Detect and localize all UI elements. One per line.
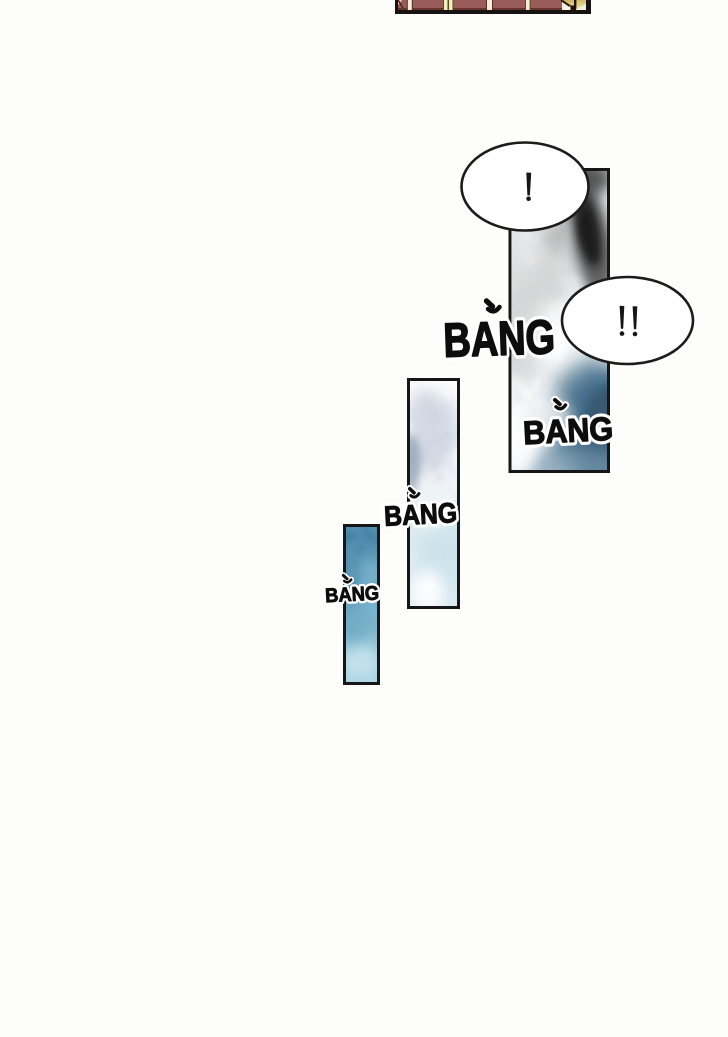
svg-text:BANG: BANG: [522, 410, 614, 452]
svg-text:BANG: BANG: [325, 583, 380, 608]
svg-text:BANG: BANG: [383, 497, 458, 532]
svg-text:BANG: BANG: [443, 311, 556, 368]
